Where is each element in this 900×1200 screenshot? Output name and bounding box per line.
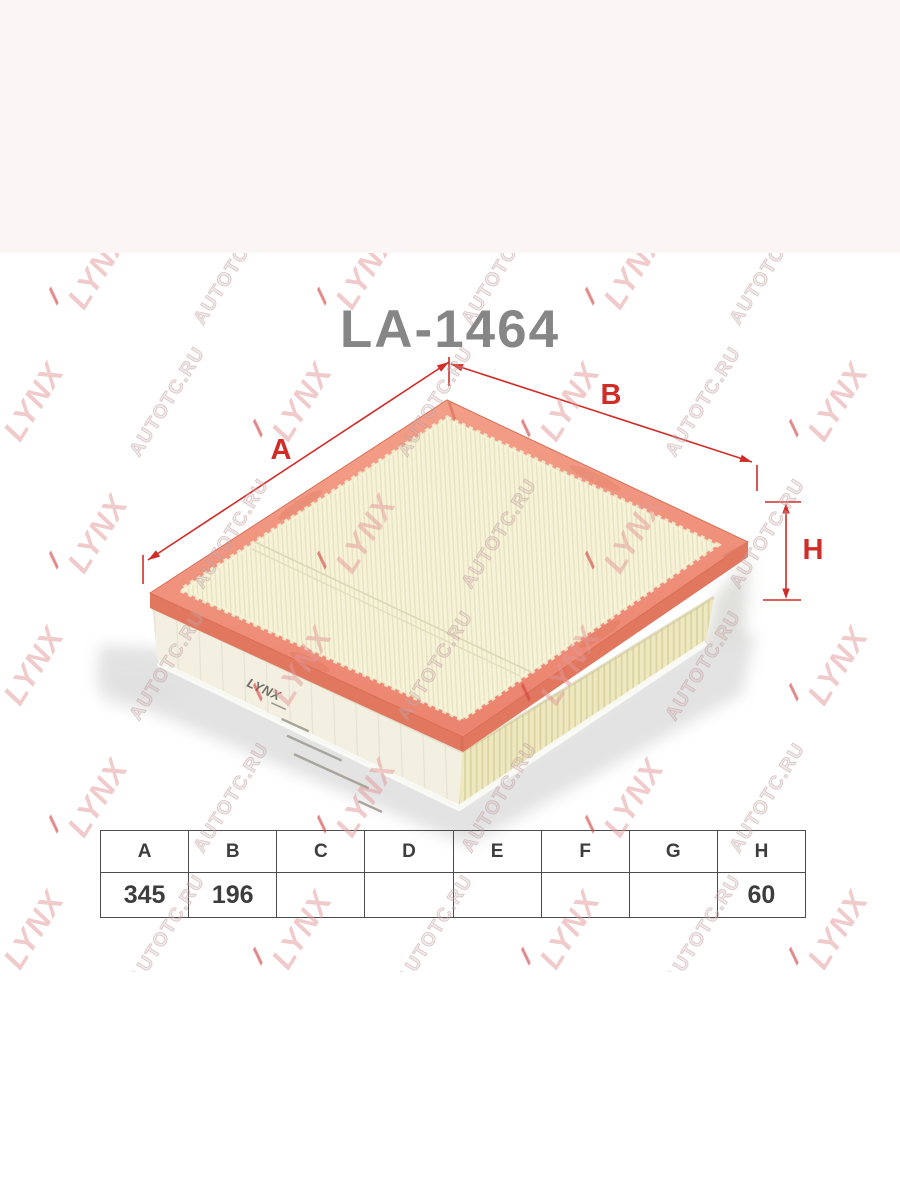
dimension-label-a: A bbox=[271, 434, 292, 466]
dim-header-cell: E bbox=[453, 831, 541, 873]
dim-header-cell: H bbox=[717, 831, 805, 873]
dim-header-cell: G bbox=[629, 831, 717, 873]
dim-value-cell: 196 bbox=[189, 873, 277, 918]
air-filter-illustration: LYNX bbox=[0, 0, 900, 1200]
dim-header-cell: A bbox=[101, 831, 189, 873]
dim-value-cell bbox=[277, 873, 365, 918]
dim-header-cell: B bbox=[189, 831, 277, 873]
dim-header-cell: D bbox=[365, 831, 453, 873]
dim-value-cell bbox=[453, 873, 541, 918]
page-title: LA-1464 bbox=[0, 303, 900, 356]
dim-value-cell: 345 bbox=[101, 873, 189, 918]
dim-header-cell: C bbox=[277, 831, 365, 873]
dimensions-table: ABCDEFGH 34519660 bbox=[100, 830, 806, 918]
dimension-label-b: B bbox=[601, 379, 622, 411]
dim-value-cell: 60 bbox=[717, 873, 805, 918]
dim-table-header-row: ABCDEFGH bbox=[101, 831, 806, 873]
dim-value-cell bbox=[541, 873, 629, 918]
dim-value-cell bbox=[365, 873, 453, 918]
product-image-canvas: LA-1464 bbox=[0, 0, 900, 1200]
dim-header-cell: F bbox=[541, 831, 629, 873]
dimension-line-h bbox=[763, 502, 801, 600]
dim-value-cell bbox=[629, 873, 717, 918]
dimension-label-h: H bbox=[803, 534, 824, 566]
dim-table-value-row: 34519660 bbox=[101, 873, 806, 918]
